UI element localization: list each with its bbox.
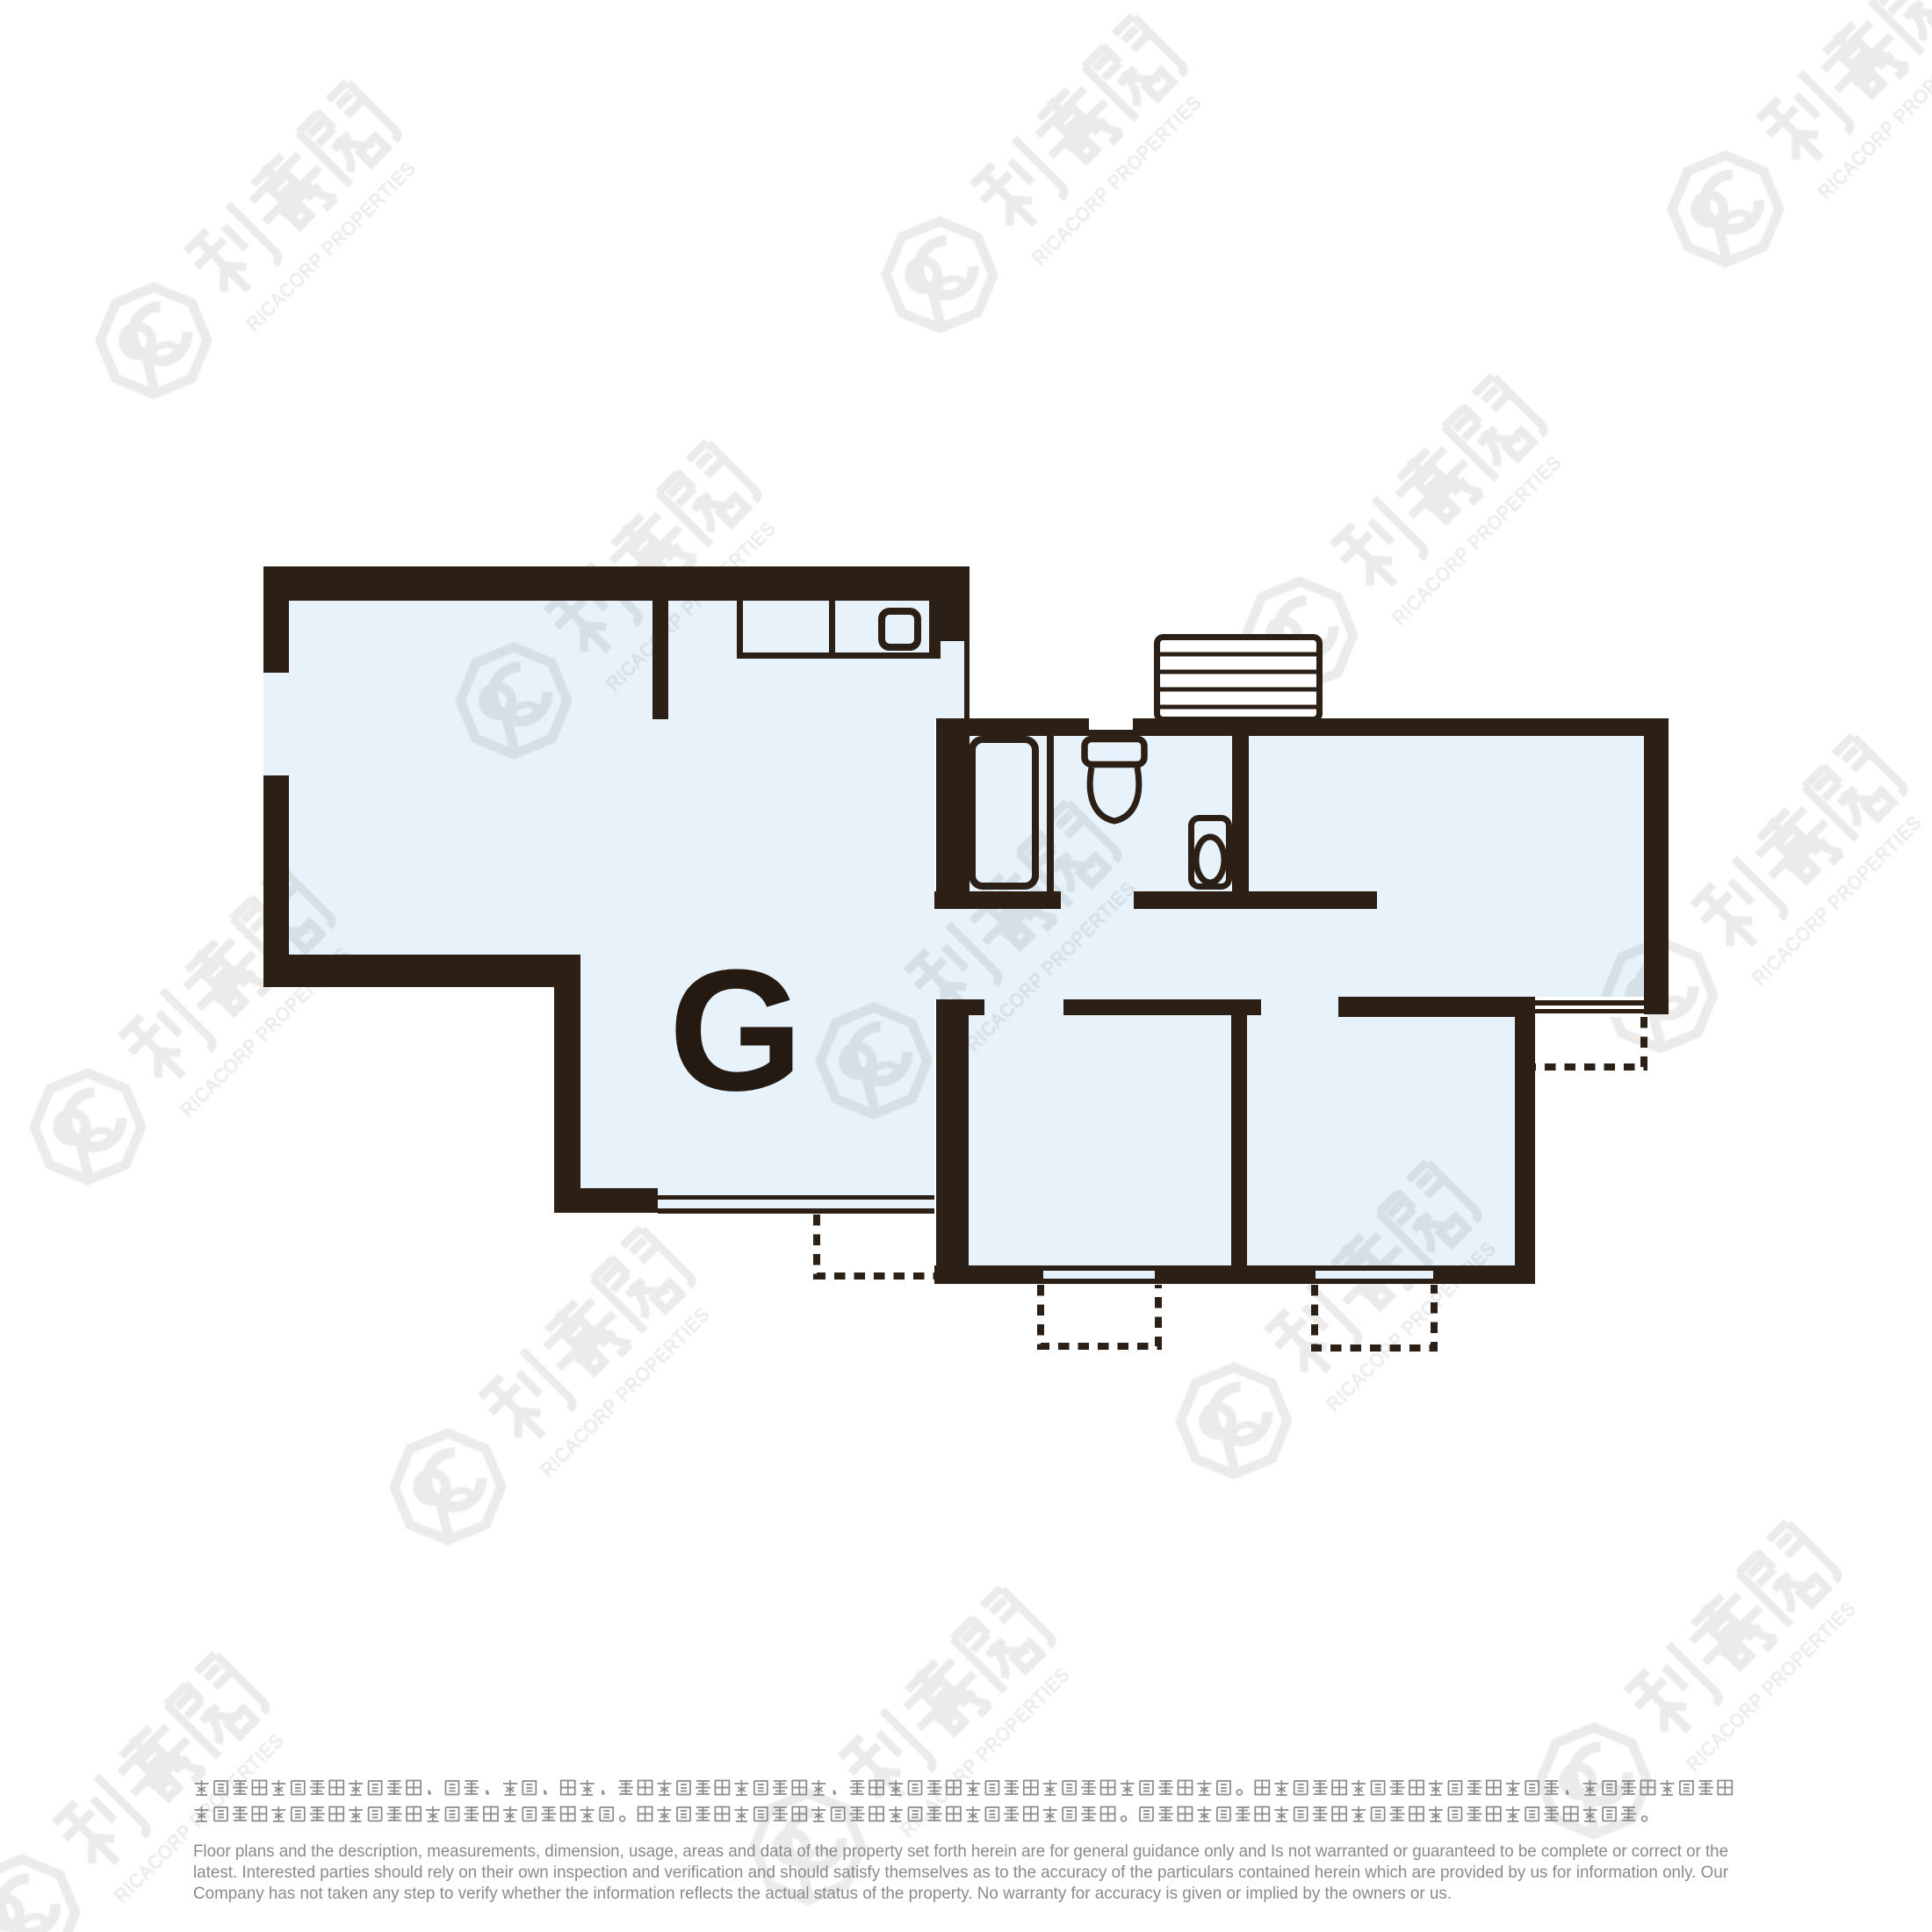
svg-text:Company has not taken any step: Company has not taken any step to verify… [193,1885,1452,1903]
svg-text:G: G [668,934,803,1127]
svg-text:latest. Interested parties sho: latest. Interested parties should rely o… [193,1864,1729,1882]
svg-text:Floor plans and the descriptio: Floor plans and the description, measure… [193,1842,1728,1861]
